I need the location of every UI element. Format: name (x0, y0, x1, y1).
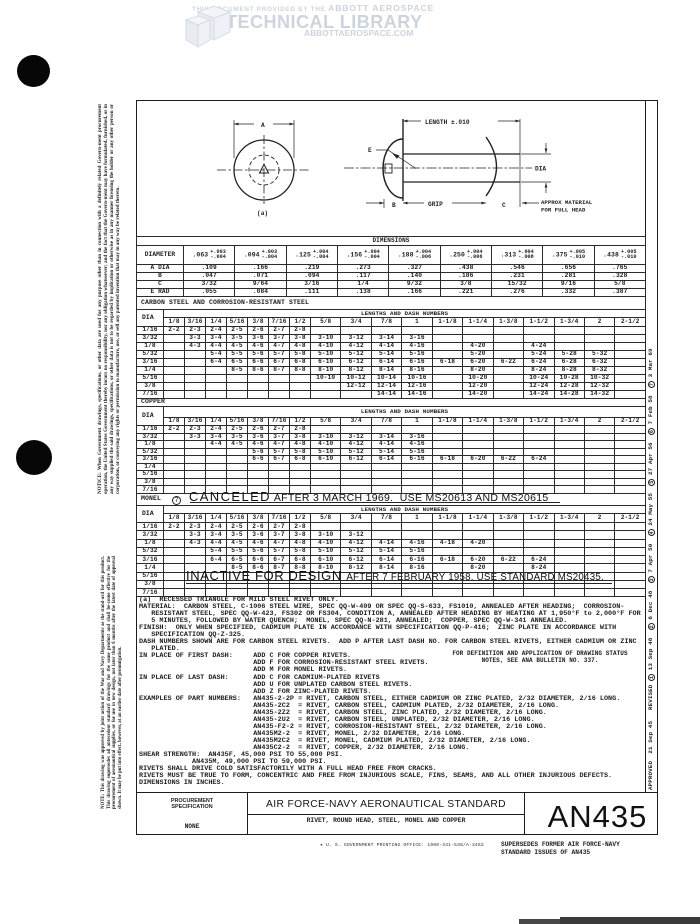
svg-text:LENGTH ±.010: LENGTH ±.010 (425, 119, 470, 126)
svg-text:FOR FULL HEAD: FOR FULL HEAD (541, 207, 586, 214)
svg-text:B: B (392, 202, 396, 209)
svg-text:DIA: DIA (535, 166, 546, 173)
svg-text:E: E (368, 147, 372, 154)
svg-text:APPROX MATERIAL: APPROX MATERIAL (541, 199, 593, 206)
svg-text:(a): (a) (257, 210, 268, 217)
svg-text:GRIP: GRIP (428, 201, 443, 208)
svg-text:C: C (502, 202, 506, 209)
svg-text:A: A (261, 122, 265, 129)
